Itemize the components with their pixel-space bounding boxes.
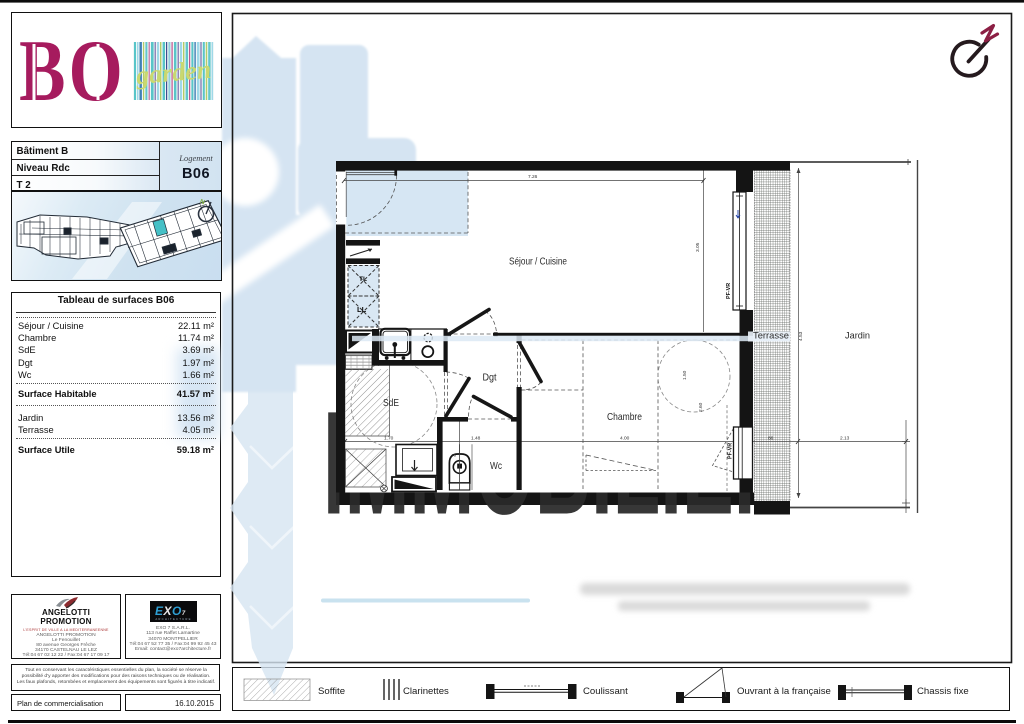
svg-text:Dgt: Dgt [483,373,497,384]
svg-text:Coulissant: Coulissant [583,686,628,697]
svg-text:1.50: 1.50 [682,370,688,380]
svg-text:4.00: 4.00 [620,436,630,442]
svg-text:Jardin: Jardin [845,331,870,342]
svg-text:Chassis fixe: Chassis fixe [917,686,969,697]
svg-text:Soffite: Soffite [318,686,345,697]
svg-text:TL: TL [359,276,367,283]
svg-text:Séjour / Cuisine: Séjour / Cuisine [509,257,567,268]
svg-text:86: 86 [768,436,774,442]
svg-text:7.26: 7.26 [528,174,538,180]
svg-text:PF-VR: PF-VR [728,443,734,459]
svg-text:SdE: SdE [383,398,399,409]
svg-text:LL: LL [357,305,367,314]
svg-text:4.53: 4.53 [798,331,804,341]
svg-text:2.60: 2.60 [698,402,704,412]
svg-text:PF-VR: PF-VR [726,283,732,299]
svg-text:Clarinettes: Clarinettes [403,686,449,697]
svg-text:3.05: 3.05 [695,242,701,252]
svg-text:Ouvrant à la française: Ouvrant à la française [737,686,831,697]
svg-text:1.70: 1.70 [384,436,394,442]
svg-text:1.48: 1.48 [471,436,481,442]
svg-text:Wc: Wc [490,461,502,472]
svg-text:75: 75 [452,453,457,458]
svg-text:Terrasse: Terrasse [753,331,789,342]
svg-text:2.13: 2.13 [840,436,850,442]
svg-text:Chambre: Chambre [607,411,642,423]
